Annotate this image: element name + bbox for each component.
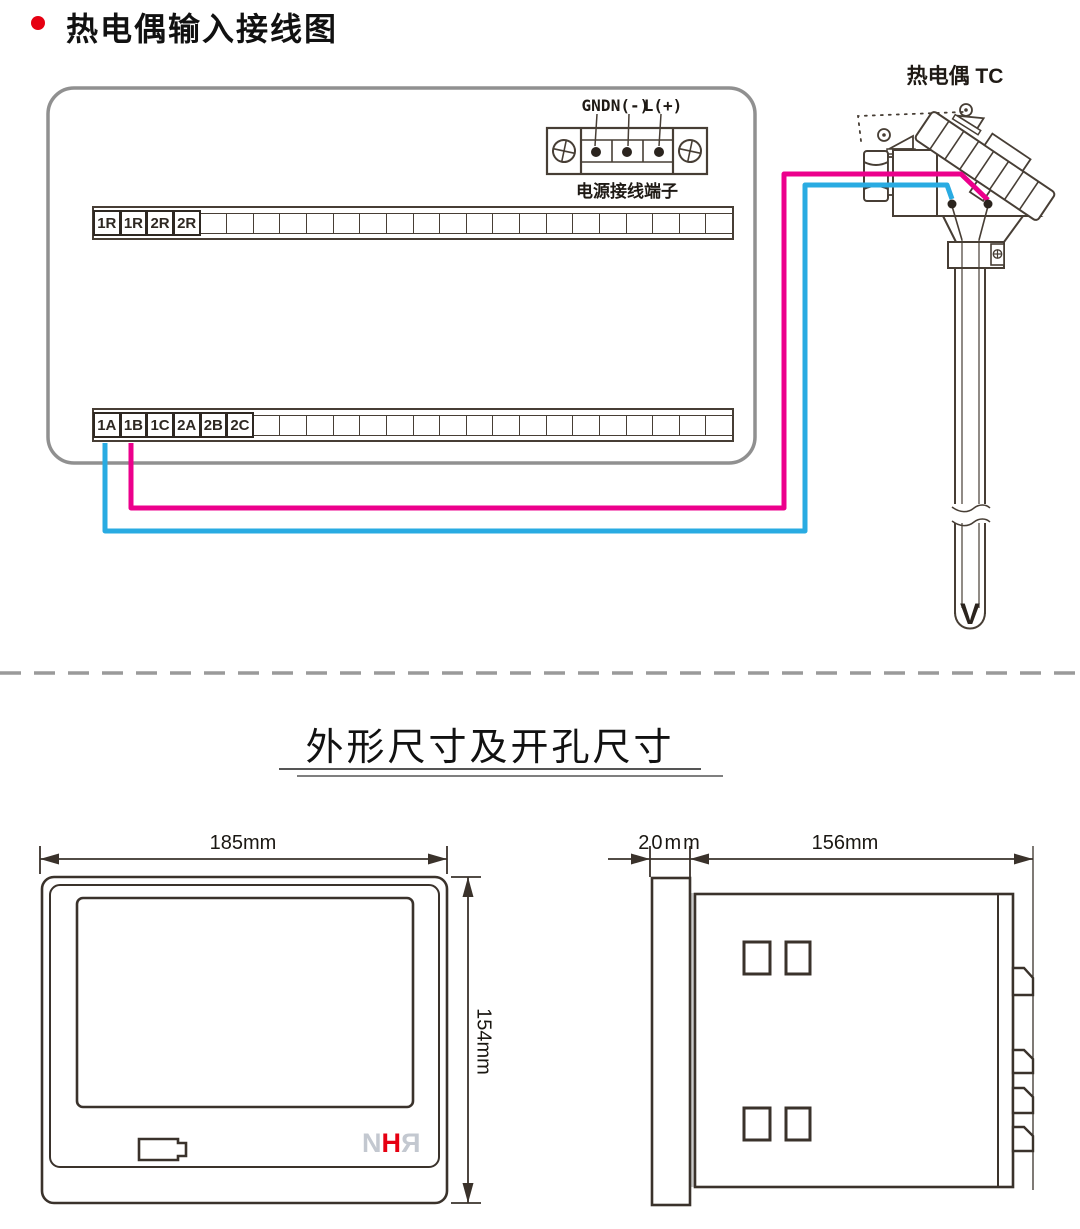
terminal-label: 2B [200, 412, 228, 438]
terminal-cell [493, 214, 520, 233]
terminal-label: 2R [173, 210, 201, 236]
brand-logo: NHR [362, 1128, 421, 1159]
terminal-cell [414, 416, 441, 435]
terminal-cell [600, 214, 627, 233]
terminal-cell [360, 214, 387, 233]
terminal-cell [627, 416, 654, 435]
terminal-cell [573, 214, 600, 233]
eye-screw-icon [878, 129, 890, 141]
power-terminal-block [547, 114, 707, 174]
dimensions-section-title: 外形尺寸及开孔尺寸 [240, 716, 740, 771]
terminal-cell: 1B [121, 416, 148, 435]
terminal-cell [280, 416, 307, 435]
terminal-cell [680, 214, 707, 233]
terminal-cell [653, 416, 680, 435]
eye-screw-icon [960, 104, 972, 116]
terminal-cell [600, 416, 627, 435]
terminal-cell [254, 214, 281, 233]
terminal-cell [307, 214, 334, 233]
terminal-cell [201, 214, 228, 233]
front-height-value: 154mm [472, 997, 495, 1087]
terminal-cell [680, 416, 707, 435]
terminal-cell [440, 214, 467, 233]
input-terminal-strip: 1A 1B 1C 2A 2B 2C [92, 408, 734, 442]
terminal-cell [706, 214, 732, 233]
terminal-cell [280, 214, 307, 233]
terminal-cell: 1A [94, 416, 121, 435]
terminal-cell [467, 416, 494, 435]
terminal-cell [573, 416, 600, 435]
manual-page: V [0, 0, 1080, 1229]
terminal-cell [307, 416, 334, 435]
terminal-cell [360, 416, 387, 435]
side-bezel-depth-value: 20mm [629, 832, 711, 855]
terminal-cell [334, 214, 361, 233]
power-label-l: L(+) [641, 96, 685, 115]
logo-letter-r: R [401, 1128, 421, 1159]
logo-letter-h: H [382, 1128, 402, 1158]
section-bullet-icon [31, 16, 45, 30]
terminal-cell: 1R [121, 214, 148, 233]
wiring-section-title: 热电偶输入接线图 [66, 4, 338, 50]
terminal-cell [520, 214, 547, 233]
terminal-label: 2C [226, 412, 254, 438]
terminal-cell [547, 214, 574, 233]
front-width-value: 185mm [193, 832, 293, 855]
terminal-cell: 2R [147, 214, 174, 233]
terminal-cell [547, 416, 574, 435]
terminal-cell [627, 214, 654, 233]
terminal-cell: 1R [94, 214, 121, 233]
terminal-label: 2A [173, 412, 201, 438]
thermocouple-label: 热电偶 TC [870, 60, 1040, 90]
terminal-cell: 2A [174, 416, 201, 435]
diagram-artwork: V [0, 0, 1080, 1229]
terminal-cell [414, 214, 441, 233]
terminal-label: 2R [146, 210, 174, 236]
terminal-cell [387, 416, 414, 435]
terminal-cell [254, 416, 281, 435]
terminal-cell [467, 214, 494, 233]
terminal-cell: 1C [147, 416, 174, 435]
terminal-cell: 2C [227, 416, 254, 435]
logo-letter-n: N [362, 1128, 382, 1158]
grub-screw-icon [993, 250, 1001, 258]
terminal-cell [440, 416, 467, 435]
terminal-cell [334, 416, 361, 435]
terminal-cell: 2B [201, 416, 228, 435]
terminal-cell [387, 214, 414, 233]
terminal-label: 1B [120, 412, 148, 438]
terminal-cell [520, 416, 547, 435]
terminal-label: 1C [146, 412, 174, 438]
terminal-cell [227, 214, 254, 233]
relay-terminal-strip: 1R 1R 2R 2R [92, 206, 734, 240]
terminal-cell: 2R [174, 214, 201, 233]
thermocouple-illustration: V [858, 99, 1064, 631]
side-view-drawing [608, 846, 1033, 1205]
mounting-hooks [1013, 968, 1033, 1151]
terminal-label: 1R [93, 210, 121, 236]
terminal-label: 1A [93, 412, 121, 438]
terminal-cell [653, 214, 680, 233]
side-body-depth-value: 156mm [795, 832, 895, 855]
power-terminal-caption: 电源接线端子 [557, 177, 697, 202]
weld-junction-mark: V [960, 598, 980, 631]
terminal-cell [493, 416, 520, 435]
terminal-label: 1R [120, 210, 148, 236]
terminal-cell [706, 416, 732, 435]
